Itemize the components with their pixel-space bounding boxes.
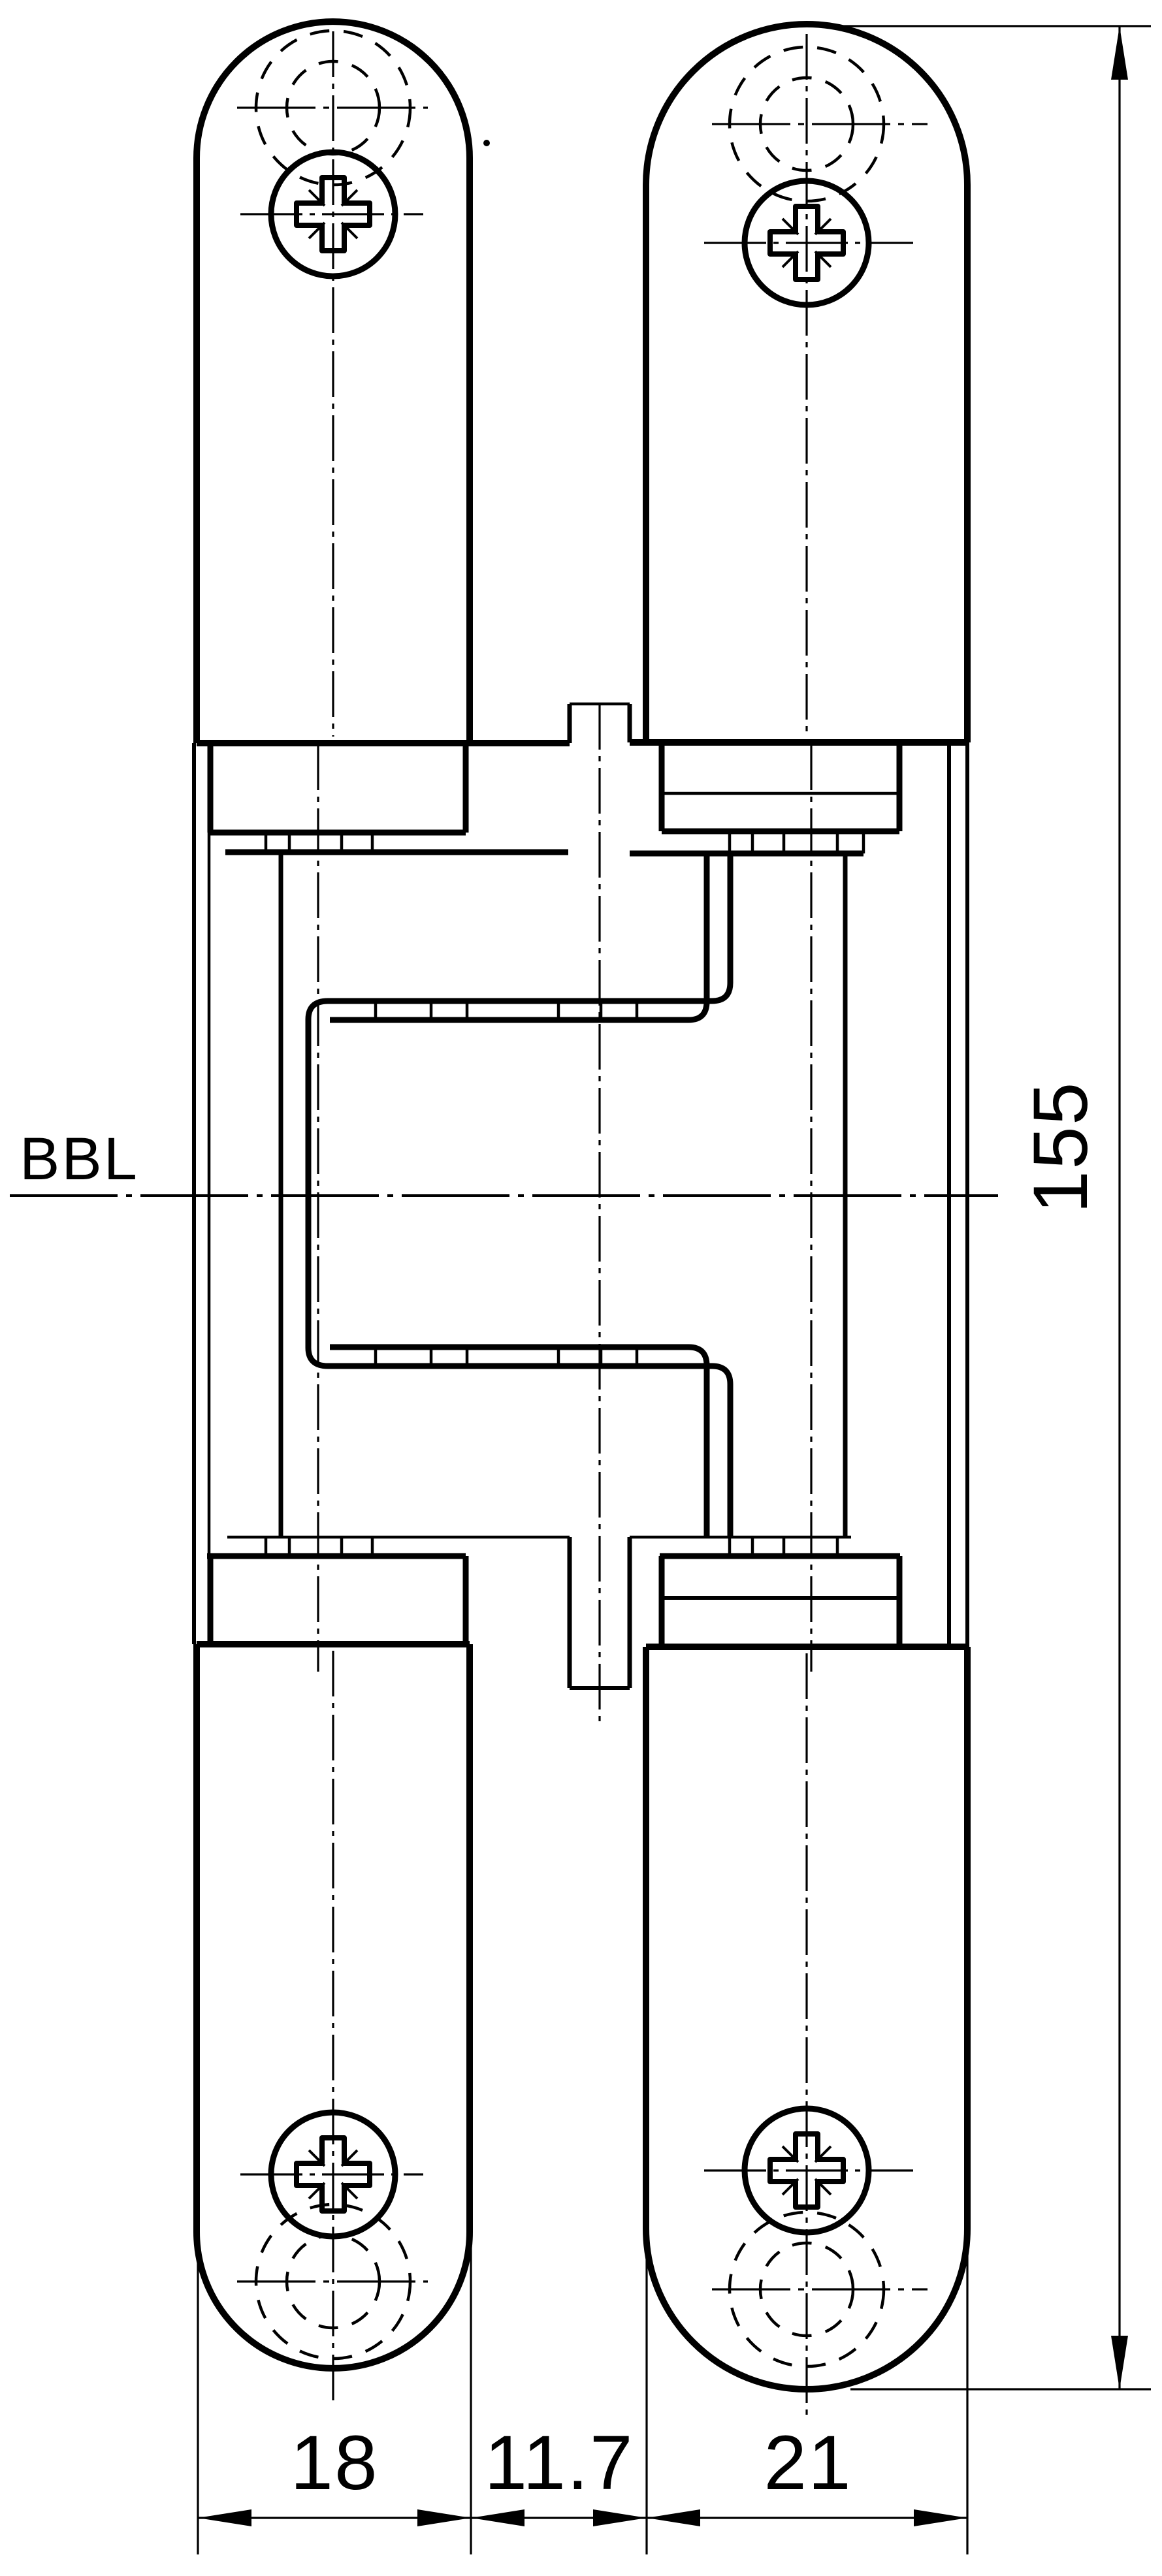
bbl-label: BBL (20, 1126, 139, 1192)
center-axis-lines (318, 31, 811, 2416)
scan-speck (483, 140, 490, 146)
pozidriv-screw-icon (240, 152, 423, 276)
pozidriv-screw-icon (704, 181, 913, 305)
hinge-technical-drawing: BBL (0, 0, 1162, 2576)
dimension-arrow (647, 2509, 700, 2526)
mounting-plate-top-right (630, 742, 899, 853)
dimension-arrow (471, 2509, 525, 2526)
link-lamination-ticks (376, 1001, 637, 1366)
dim-18-label: 18 (290, 2420, 378, 2506)
pozidriv-screw-icon (240, 2112, 423, 2236)
dimension-arrow (914, 2509, 967, 2526)
drawing-sheet: BBL (0, 0, 1162, 2576)
dimension-arrow (1111, 26, 1128, 80)
bbl-reference-line: BBL (10, 1126, 998, 1196)
mounting-plate-bottom-right (630, 1537, 900, 1647)
dim-21-label: 21 (764, 2420, 852, 2506)
hidden-hole-icon (712, 2212, 928, 2366)
hidden-hole-icon (712, 47, 928, 201)
pozidriv-screw-icon (704, 2108, 913, 2233)
dimension-arrow (1111, 2336, 1128, 2389)
dimension-arrow (198, 2509, 251, 2526)
mounting-plate-top-left (210, 743, 568, 852)
dim-11-7-label: 11.7 (485, 2420, 634, 2506)
dimension-155: 155 (843, 26, 1151, 2389)
mounting-plate-bottom-left (207, 1537, 570, 1644)
dimension-arrow (417, 2509, 471, 2526)
dimension-arrow (593, 2509, 647, 2526)
dim-155-label: 155 (1018, 1081, 1104, 1214)
